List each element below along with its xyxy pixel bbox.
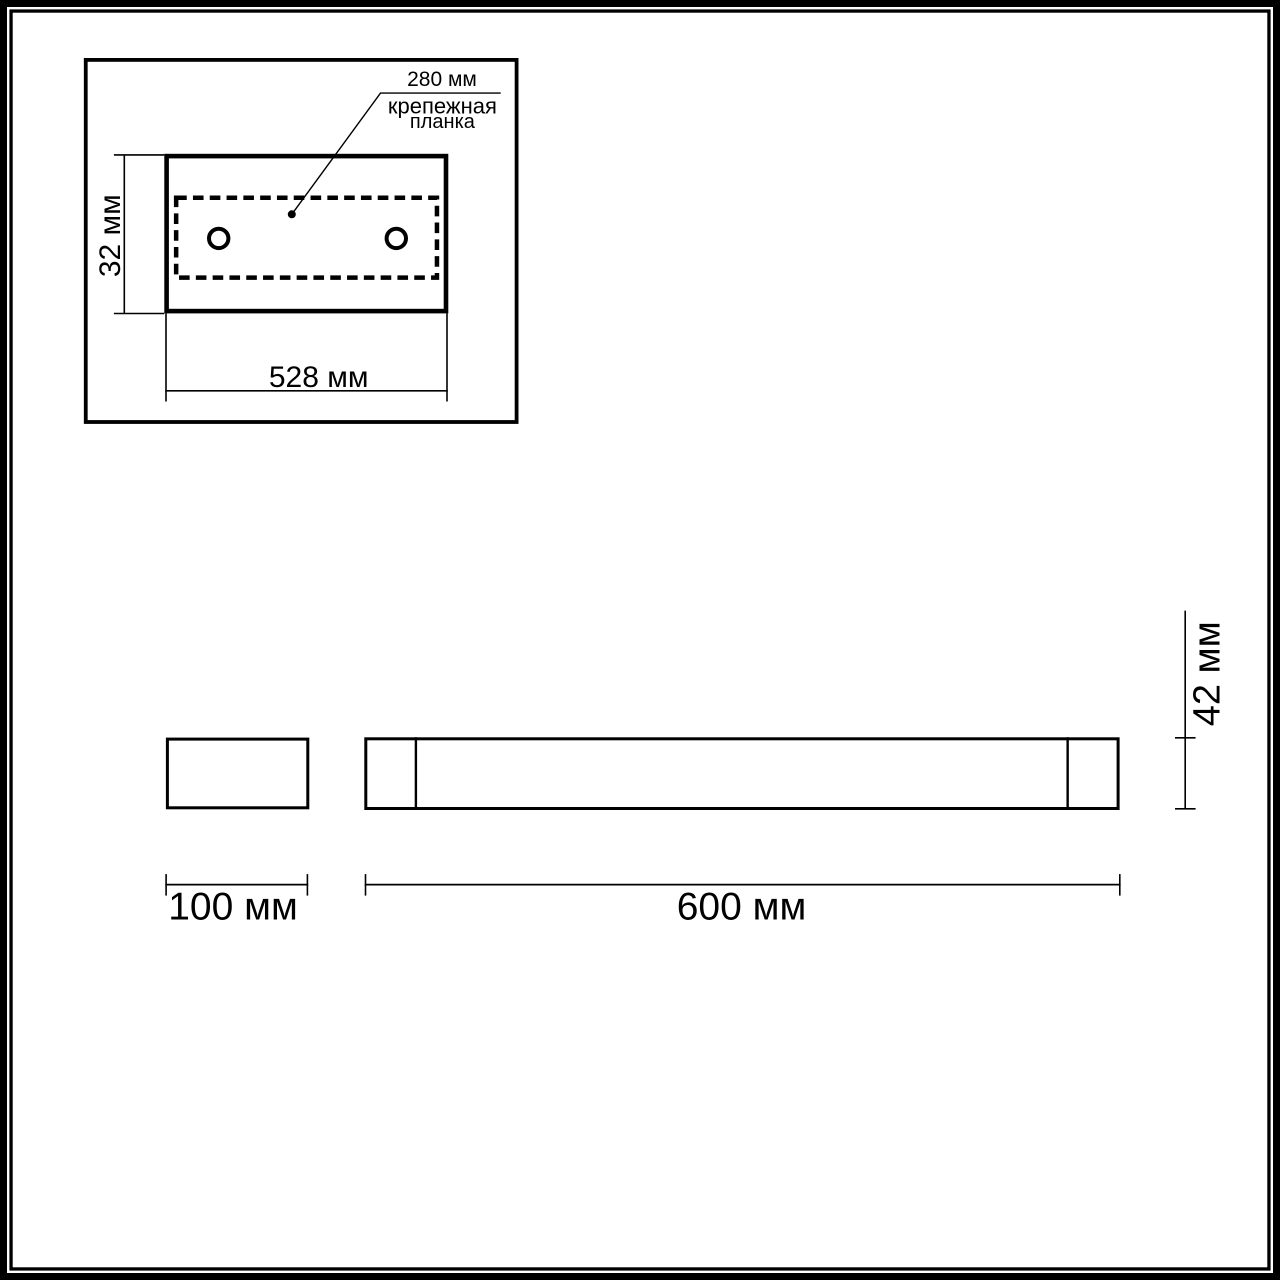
svg-text:42 мм: 42 мм	[1186, 621, 1228, 726]
svg-text:32 мм: 32 мм	[94, 194, 127, 277]
svg-text:600 мм: 600 мм	[677, 886, 807, 929]
svg-text:528 мм: 528 мм	[269, 361, 369, 394]
svg-text:планка: планка	[410, 111, 476, 133]
svg-text:280 мм: 280 мм	[407, 68, 477, 91]
svg-text:100 мм: 100 мм	[168, 886, 298, 929]
